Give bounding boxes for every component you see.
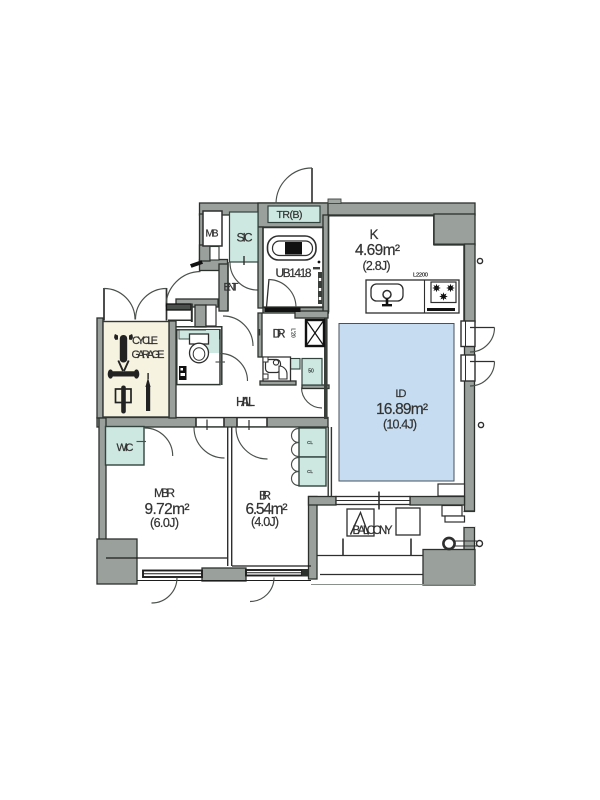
svg-text:(2.8J): (2.8J) xyxy=(363,259,391,273)
svg-text:L2200: L2200 xyxy=(413,273,428,279)
svg-text:WIC: WIC xyxy=(117,442,134,454)
svg-text:LD: LD xyxy=(396,388,407,400)
svg-text:(4.0J): (4.0J) xyxy=(251,515,279,529)
svg-text:TR(B): TR(B) xyxy=(277,209,303,221)
svg-text:MB: MB xyxy=(206,229,219,240)
svg-text:UB1418: UB1418 xyxy=(276,266,312,280)
svg-text:50: 50 xyxy=(308,369,314,375)
svg-text:16.89m²: 16.89m² xyxy=(376,401,428,418)
svg-text:4.69m²: 4.69m² xyxy=(355,242,400,259)
svg-text:(6.0J): (6.0J) xyxy=(150,516,179,530)
svg-text:MBR: MBR xyxy=(154,486,175,500)
svg-text:CYCLE: CYCLE xyxy=(132,335,158,347)
svg-text:GARAGE: GARAGE xyxy=(132,349,165,361)
svg-text:CL: CL xyxy=(307,469,313,474)
svg-text:SIC: SIC xyxy=(237,231,253,245)
svg-text:HALL: HALL xyxy=(236,395,255,409)
svg-text:K: K xyxy=(369,227,378,242)
svg-text:L'20: L'20 xyxy=(290,328,296,338)
svg-text:ENT: ENT xyxy=(224,282,239,294)
svg-text:(10.4J): (10.4J) xyxy=(383,418,417,432)
svg-text:CL: CL xyxy=(307,440,313,445)
svg-text:DR: DR xyxy=(273,327,286,341)
svg-text:BALCONY: BALCONY xyxy=(353,525,393,537)
